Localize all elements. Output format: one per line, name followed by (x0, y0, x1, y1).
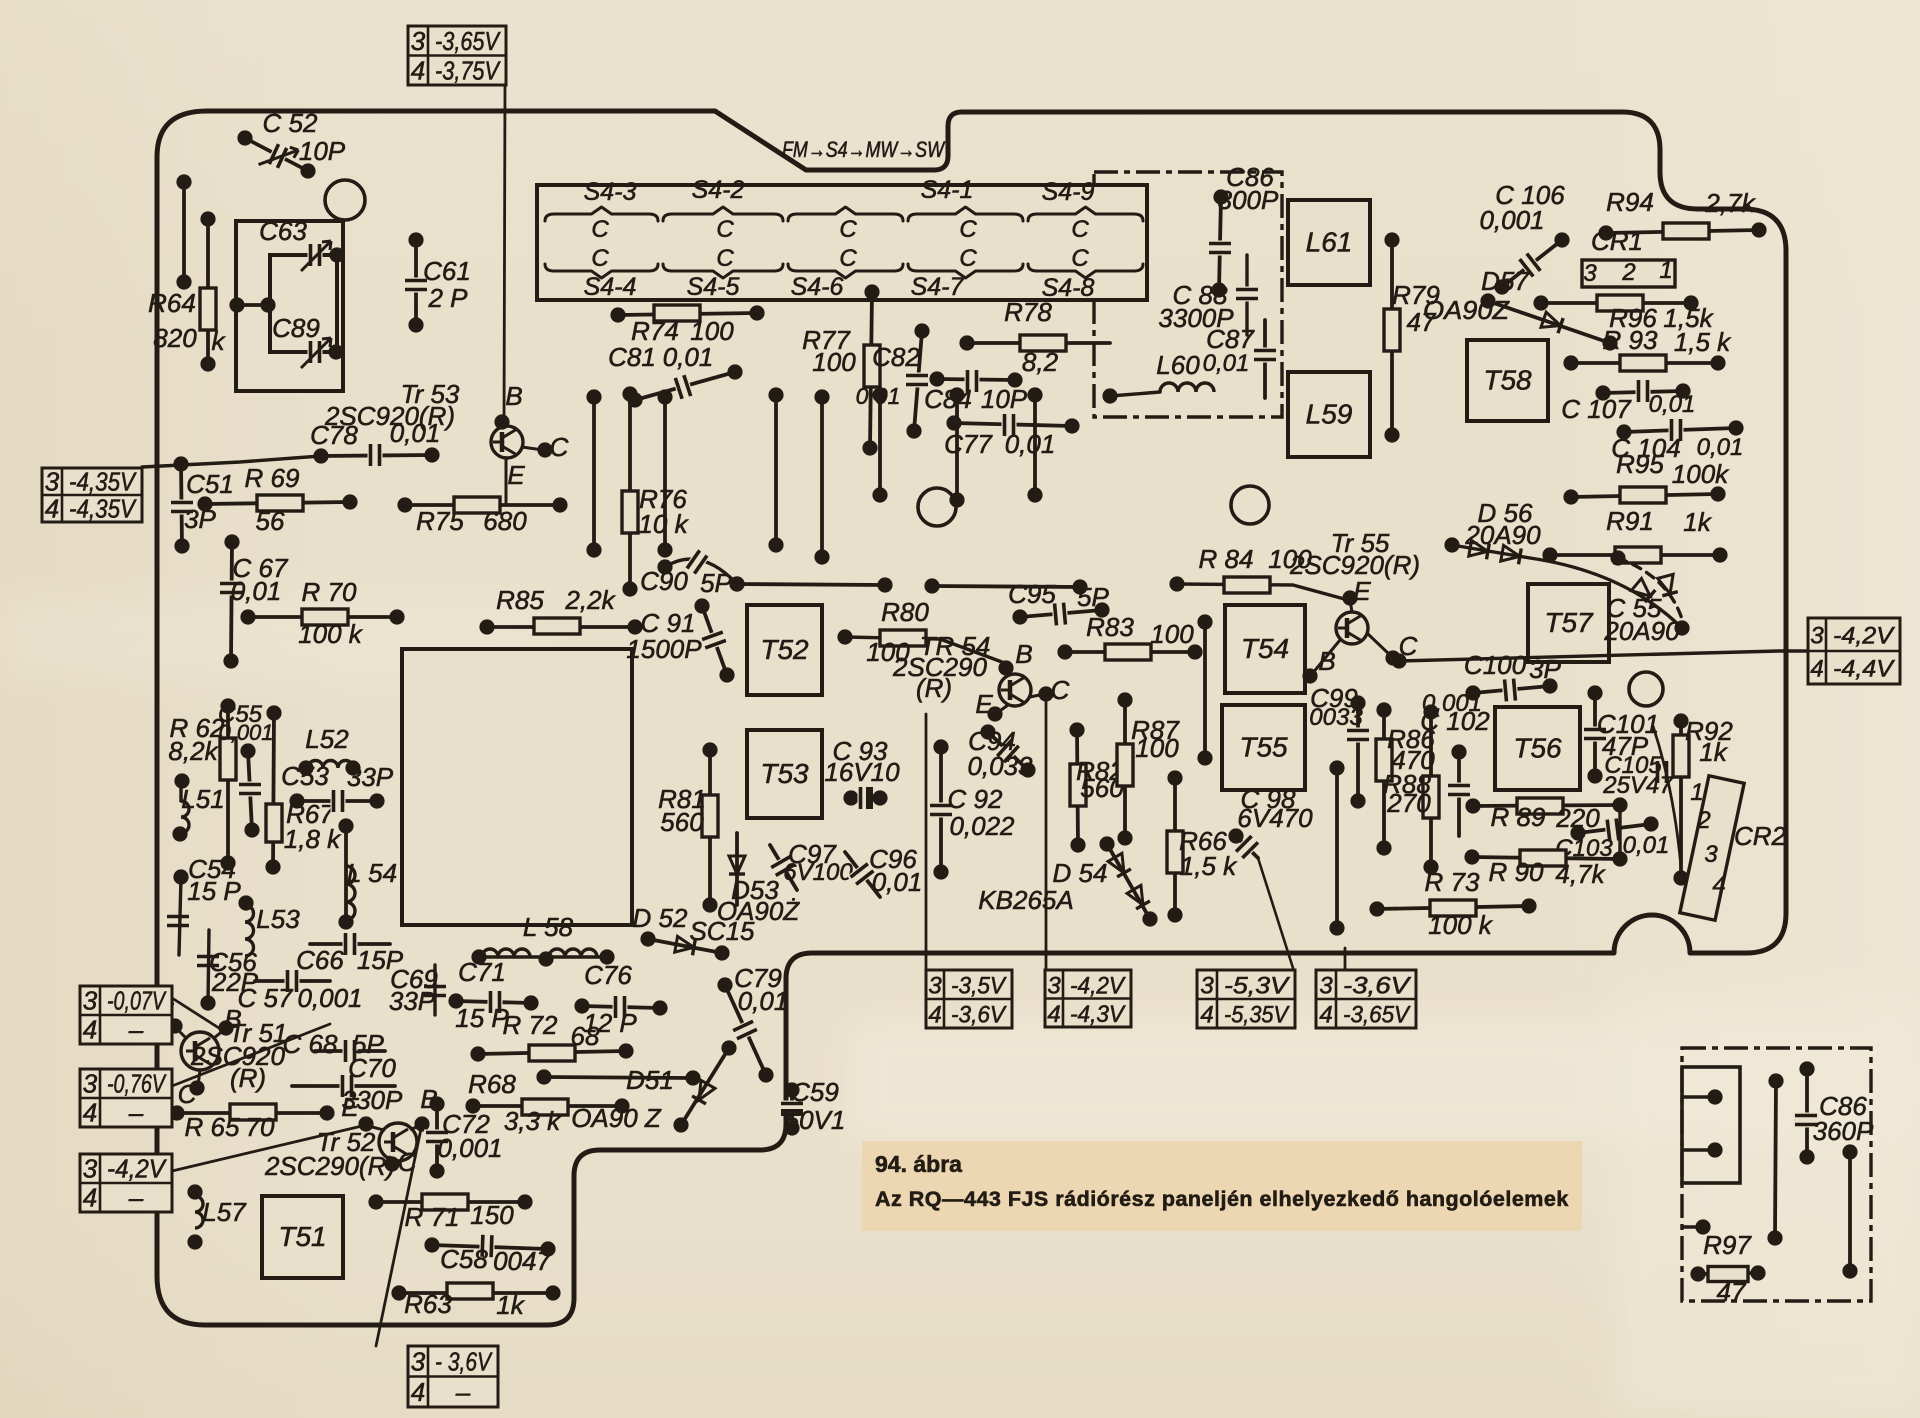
svg-text:R 90: R 90 (1489, 857, 1544, 887)
svg-text:-4,35V: -4,35V (69, 494, 137, 524)
svg-text:100: 100 (1135, 733, 1179, 763)
svg-text:4: 4 (1810, 656, 1823, 683)
svg-text:T51: T51 (278, 1221, 326, 1252)
svg-text:C59: C59 (791, 1077, 839, 1107)
svg-text:C 92: C 92 (948, 784, 1003, 814)
svg-text:-4,2V: -4,2V (107, 1154, 167, 1184)
svg-text:–: – (455, 1377, 471, 1407)
svg-text:L60: L60 (1156, 350, 1200, 380)
svg-text:1k: 1k (1699, 737, 1728, 767)
svg-text:–: – (128, 1098, 144, 1128)
svg-text:100: 100 (1150, 619, 1194, 649)
svg-text:C71: C71 (458, 957, 506, 987)
svg-text:0,001: 0,001 (437, 1133, 502, 1163)
svg-text:-0,76V: -0,76V (107, 1069, 167, 1099)
svg-text:E: E (975, 689, 993, 719)
svg-text:-3,65V: -3,65V (435, 26, 501, 56)
svg-text:1,5 k: 1,5 k (1674, 327, 1732, 357)
svg-text:C84: C84 (924, 384, 972, 414)
svg-text:C: C (716, 216, 734, 243)
svg-text:-3,65V: -3,65V (1343, 1002, 1411, 1029)
svg-text:C51: C51 (186, 469, 234, 499)
svg-text:0,01: 0,01 (872, 867, 923, 897)
svg-text:3: 3 (411, 1346, 426, 1376)
svg-text:4: 4 (411, 1377, 425, 1407)
svg-text:R78: R78 (1004, 297, 1052, 327)
svg-text:R 65: R 65 (185, 1112, 240, 1142)
svg-text:R 73: R 73 (1425, 867, 1480, 897)
svg-text:-3,75V: -3,75V (435, 55, 501, 85)
svg-text:3: 3 (45, 467, 60, 497)
svg-text:0,001: 0,001 (297, 983, 362, 1013)
svg-text:T58: T58 (1483, 365, 1532, 396)
svg-text:S4-9: S4-9 (1042, 178, 1095, 206)
svg-text:0033: 0033 (1309, 704, 1363, 731)
svg-text:-4,4V: -4,4V (1833, 656, 1895, 683)
svg-text:1: 1 (1659, 257, 1672, 284)
svg-text:-5,35V: -5,35V (1224, 1002, 1290, 1029)
svg-text:L 58: L 58 (523, 912, 574, 942)
svg-text:2: 2 (1621, 259, 1635, 286)
svg-text:C82: C82 (872, 342, 920, 372)
svg-text:0,01: 0,01 (663, 342, 714, 372)
svg-text:-5,3V: -5,3V (1224, 973, 1290, 1000)
svg-text:-3,6V: -3,6V (1343, 973, 1411, 1000)
svg-text:8,2: 8,2 (1022, 347, 1059, 377)
svg-text:S4-2: S4-2 (692, 176, 745, 204)
svg-text:2,2k: 2,2k (564, 585, 616, 615)
svg-text:C: C (1071, 216, 1089, 243)
svg-text:B: B (505, 381, 522, 411)
svg-text:150: 150 (470, 1200, 514, 1230)
svg-text:2SC920(R): 2SC920(R) (324, 401, 455, 431)
svg-text:1,8 k: 1,8 k (284, 824, 342, 854)
svg-text:R 93: R 93 (1603, 325, 1658, 355)
svg-text:4,7k: 4,7k (1555, 859, 1606, 889)
svg-text:0,01: 0,01 (1203, 350, 1250, 377)
svg-text:C100: C100 (1464, 650, 1527, 680)
svg-text:S4-6: S4-6 (791, 273, 844, 301)
svg-text:3: 3 (83, 986, 98, 1016)
svg-text:L61: L61 (1306, 227, 1353, 258)
svg-text:4: 4 (1047, 1001, 1060, 1028)
svg-text:L 54: L 54 (347, 858, 397, 888)
svg-text:R95: R95 (1616, 449, 1664, 479)
svg-text:0,033: 0,033 (967, 751, 1033, 781)
svg-text:R83: R83 (1086, 612, 1134, 642)
svg-text:68: 68 (571, 1021, 600, 1051)
svg-text:94. ábra: 94. ábra (875, 1151, 962, 1177)
svg-text:1500P: 1500P (626, 634, 702, 664)
svg-text:4: 4 (1200, 1002, 1213, 1029)
svg-text:C77: C77 (944, 429, 993, 459)
svg-text:T56: T56 (1513, 733, 1562, 764)
svg-text:C90: C90 (640, 566, 688, 596)
svg-text:R 84: R 84 (1199, 544, 1254, 574)
svg-text:E: E (341, 1092, 359, 1122)
svg-text:3P: 3P (1529, 654, 1561, 684)
svg-text:L53: L53 (256, 904, 300, 934)
svg-text:47: 47 (1717, 1277, 1747, 1307)
svg-text:-3,5V: -3,5V (951, 973, 1007, 1000)
svg-text:R91: R91 (1606, 506, 1654, 536)
svg-text:S4-5: S4-5 (687, 273, 740, 301)
svg-text:0,001: 0,001 (1479, 205, 1544, 235)
svg-text:CR2: CR2 (1734, 821, 1787, 851)
svg-text:0047: 0047 (493, 1246, 552, 1276)
svg-text:D51: D51 (626, 1065, 674, 1095)
svg-text:R 69: R 69 (245, 463, 300, 493)
svg-text:S4-1: S4-1 (921, 176, 974, 204)
svg-text:680: 680 (483, 506, 527, 536)
svg-text:C81: C81 (608, 342, 656, 372)
svg-text:16V10: 16V10 (824, 757, 900, 787)
svg-text:3: 3 (83, 1069, 98, 1099)
svg-text:–: – (128, 1015, 144, 1045)
svg-text:C: C (550, 432, 569, 462)
svg-text:6V470: 6V470 (1237, 803, 1313, 833)
svg-text:0,01: 0,01 (738, 986, 789, 1016)
svg-text:10P: 10P (981, 384, 1028, 414)
svg-text:4: 4 (1319, 1002, 1332, 1029)
svg-text:20A90: 20A90 (1603, 616, 1680, 646)
svg-text:1: 1 (1690, 779, 1703, 806)
svg-text:100 k: 100 k (1428, 910, 1494, 940)
svg-text:3,3 k: 3,3 k (504, 1106, 562, 1136)
svg-text:D57: D57 (1481, 266, 1530, 296)
svg-text:R 71: R 71 (405, 1202, 460, 1232)
svg-text:C: C (839, 216, 857, 243)
svg-text:L57: L57 (202, 1197, 247, 1227)
svg-text:5P: 5P (1077, 582, 1109, 612)
svg-text:820: 820 (153, 323, 197, 353)
svg-text:33P: 33P (347, 762, 394, 792)
svg-text:8,2k: 8,2k (168, 736, 219, 766)
svg-text:R85: R85 (496, 585, 544, 615)
svg-text:C: C (591, 216, 609, 243)
svg-text:R94: R94 (1606, 187, 1654, 217)
svg-text:(R): (R) (916, 673, 952, 703)
svg-text:S4-3: S4-3 (584, 178, 637, 206)
svg-text:(R): (R) (230, 1063, 266, 1093)
svg-text:6V100: 6V100 (783, 859, 853, 886)
svg-text:C: C (716, 245, 734, 272)
svg-text:100 k: 100 k (298, 619, 364, 649)
svg-text:5P: 5P (700, 568, 732, 598)
svg-text:C89: C89 (272, 313, 320, 343)
svg-text:k: k (212, 326, 227, 356)
svg-text:-0,07V: -0,07V (107, 986, 167, 1016)
svg-text:T54: T54 (1241, 633, 1289, 664)
svg-text:100: 100 (812, 347, 856, 377)
svg-text:4: 4 (83, 1183, 97, 1213)
svg-text:100: 100 (1268, 544, 1312, 574)
svg-text:15 P: 15 P (187, 876, 241, 906)
svg-text:15 P: 15 P (455, 1003, 509, 1033)
svg-text:L51: L51 (181, 784, 224, 814)
svg-text:R 70: R 70 (302, 577, 357, 607)
svg-text:2 P: 2 P (427, 283, 468, 313)
svg-text:C 57: C 57 (238, 983, 294, 1013)
svg-text:R 89: R 89 (1491, 802, 1546, 832)
svg-text:C63: C63 (259, 216, 307, 246)
svg-text:3: 3 (928, 973, 942, 1000)
svg-text:33P: 33P (389, 986, 436, 1016)
svg-text:C: C (839, 245, 857, 272)
svg-text:C 102: C 102 (1420, 706, 1490, 736)
svg-text:560: 560 (660, 807, 704, 837)
svg-text:- 3,6V: - 3,6V (435, 1346, 493, 1376)
svg-text:R63: R63 (404, 1289, 452, 1319)
svg-text:R97: R97 (1703, 1230, 1752, 1260)
svg-text:S4-4: S4-4 (584, 273, 637, 301)
svg-text:2SC290(R): 2SC290(R) (264, 1151, 395, 1181)
svg-text:C66: C66 (296, 945, 344, 975)
svg-text:2,7k: 2,7k (1704, 188, 1756, 218)
svg-text:C 107: C 107 (1561, 394, 1632, 424)
svg-text:0,01: 0,01 (1649, 391, 1696, 418)
svg-text:S4-7: S4-7 (911, 273, 965, 301)
svg-text:-4,2V: -4,2V (1833, 623, 1895, 650)
svg-text:B: B (1318, 646, 1335, 676)
svg-text:4: 4 (83, 1098, 97, 1128)
svg-text:OA90Z: OA90Z (1423, 295, 1510, 325)
svg-text:70: 70 (246, 1112, 275, 1142)
svg-text:R 72: R 72 (503, 1010, 558, 1040)
svg-text:0,01: 0,01 (231, 576, 282, 606)
svg-text:C61: C61 (423, 256, 471, 286)
svg-text:4: 4 (1712, 872, 1725, 899)
svg-text:CR1: CR1 (1591, 226, 1643, 256)
svg-text:56: 56 (256, 506, 285, 536)
svg-text:B: B (1015, 639, 1032, 669)
svg-text:C58: C58 (440, 1244, 488, 1274)
svg-text:0,01: 0,01 (1697, 434, 1744, 461)
svg-text:C: C (959, 245, 977, 272)
svg-text:3: 3 (411, 26, 426, 56)
svg-text:0,01: 0,01 (856, 383, 901, 409)
svg-text:C: C (1051, 675, 1070, 705)
svg-text:FM→S4→MW→SW: FM→S4→MW→SW (782, 137, 946, 162)
svg-text:C: C (959, 216, 977, 243)
svg-text:-4,35V: -4,35V (69, 467, 137, 497)
svg-text:R75: R75 (416, 506, 464, 536)
svg-text:3: 3 (1047, 972, 1061, 999)
svg-text:C: C (1071, 245, 1089, 272)
svg-text:3: 3 (1704, 841, 1718, 868)
svg-text:T55: T55 (1239, 732, 1288, 763)
svg-text:D 52: D 52 (633, 903, 688, 933)
svg-text:1k: 1k (496, 1290, 525, 1320)
svg-text:T53: T53 (760, 758, 809, 789)
svg-text:0,01: 0,01 (1623, 832, 1670, 859)
svg-text:360P: 360P (1813, 1116, 1874, 1146)
svg-text:0,001: 0,001 (218, 720, 273, 745)
svg-text:T52: T52 (760, 634, 809, 665)
svg-text:100k: 100k (1672, 459, 1730, 489)
svg-text:-4,2V: -4,2V (1070, 972, 1126, 999)
svg-text:C76: C76 (584, 960, 632, 990)
svg-text:R80: R80 (881, 597, 929, 627)
svg-text:C53: C53 (281, 761, 329, 791)
svg-text:SC15: SC15 (689, 916, 755, 946)
svg-text:C95: C95 (1008, 579, 1056, 609)
svg-text:T57: T57 (1544, 607, 1594, 638)
svg-text:E: E (1353, 576, 1371, 606)
svg-text:3: 3 (1200, 973, 1214, 1000)
svg-text:3: 3 (1319, 973, 1333, 1000)
svg-text:3: 3 (1583, 260, 1597, 287)
svg-text:–: – (128, 1183, 144, 1213)
svg-text:4: 4 (83, 1015, 97, 1045)
svg-text:C 52: C 52 (263, 108, 318, 138)
svg-text:E: E (507, 460, 525, 490)
svg-text:4: 4 (928, 1002, 941, 1029)
svg-text:KB265A: KB265A (978, 885, 1073, 915)
svg-text:L52: L52 (305, 724, 349, 754)
svg-text:10P: 10P (299, 136, 346, 166)
svg-text:-3,6V: -3,6V (951, 1002, 1007, 1029)
svg-text:300P: 300P (1218, 185, 1279, 215)
svg-text:C: C (591, 245, 609, 272)
svg-text:D 54: D 54 (1053, 858, 1108, 888)
svg-text:2: 2 (1696, 807, 1710, 834)
svg-text:4: 4 (411, 55, 425, 85)
svg-text:C70: C70 (348, 1053, 396, 1083)
svg-text:3: 3 (1810, 623, 1824, 650)
svg-text:50V1: 50V1 (785, 1105, 846, 1135)
svg-text:4: 4 (45, 494, 59, 524)
svg-text:C 68: C 68 (283, 1029, 338, 1059)
svg-text:R64: R64 (148, 288, 196, 318)
svg-text:0,022: 0,022 (949, 811, 1015, 841)
svg-text:L59: L59 (1306, 399, 1353, 430)
svg-text:3: 3 (83, 1154, 98, 1184)
svg-text:Az RQ—443 FJS rádiórész panelj: Az RQ—443 FJS rádiórész paneljén elhelye… (875, 1187, 1569, 1211)
svg-text:0,01: 0,01 (1005, 429, 1056, 459)
svg-text:1,5 k: 1,5 k (1180, 851, 1238, 881)
svg-text:1k: 1k (1683, 507, 1712, 537)
svg-text:-4,3V: -4,3V (1070, 1001, 1126, 1028)
svg-text:270: 270 (1386, 788, 1431, 818)
svg-text:R68: R68 (468, 1069, 516, 1099)
svg-text:25V47: 25V47 (1602, 772, 1674, 799)
